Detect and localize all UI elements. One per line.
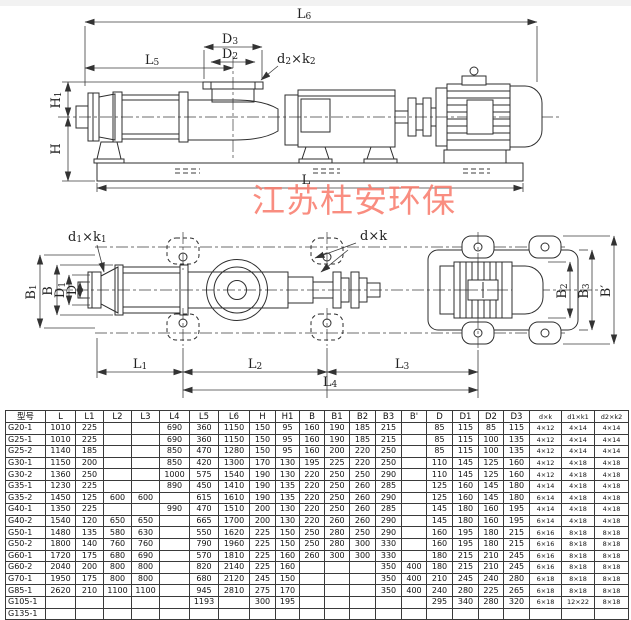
value-cell: 1960 (219, 538, 250, 550)
value-cell (160, 573, 190, 585)
col-header-15: D (427, 411, 453, 423)
value-cell: 4×12 (530, 434, 562, 446)
value-cell: 4×18 (562, 492, 595, 504)
value-cell: 2040 (46, 562, 76, 574)
value-cell: 8×18 (562, 527, 595, 539)
value-cell: 8×18 (562, 538, 595, 550)
value-cell (350, 573, 376, 585)
value-cell (402, 527, 427, 539)
model-cell: G35-1 (6, 480, 46, 492)
value-cell: 1510 (219, 504, 250, 516)
col-header-11: B1 (325, 411, 350, 423)
value-cell: 135 (76, 527, 104, 539)
col-header-21: d2×k2 (595, 411, 629, 423)
value-cell: 160 (427, 538, 453, 550)
value-cell: 135 (504, 434, 530, 446)
col-header-6: L5 (190, 411, 219, 423)
value-cell (325, 608, 350, 620)
model-cell: G60-1 (6, 550, 46, 562)
value-cell (132, 446, 160, 458)
value-cell: 1540 (219, 469, 250, 481)
value-cell: 185 (76, 446, 104, 458)
dim-label-L: L (302, 173, 311, 188)
value-cell: 115 (504, 423, 530, 435)
value-cell: 4×14 (562, 446, 595, 458)
value-cell: 420 (190, 457, 219, 469)
value-cell: 225 (76, 423, 104, 435)
value-cell: 250 (350, 527, 376, 539)
value-cell: 4×14 (595, 423, 629, 435)
dim-label-B1: B1 (24, 284, 39, 299)
col-header-16: D1 (453, 411, 479, 423)
value-cell: 1620 (219, 527, 250, 539)
value-cell: 250 (325, 492, 350, 504)
value-cell (219, 608, 250, 620)
table-row: G40-215401206506506651700200130220260260… (6, 515, 629, 527)
value-cell (530, 608, 562, 620)
value-cell: 215 (504, 527, 530, 539)
model-cell: G25-2 (6, 446, 46, 458)
suction-casing (188, 82, 278, 140)
value-cell: 280 (479, 596, 504, 608)
model-cell: G20-1 (6, 423, 46, 435)
value-cell: 160 (300, 434, 325, 446)
value-cell: 600 (132, 492, 160, 504)
value-cell: 95 (276, 434, 300, 446)
value-cell (504, 608, 530, 620)
dim-label-B3: B3 (577, 283, 592, 299)
value-cell (160, 596, 190, 608)
value-cell: 250 (325, 504, 350, 516)
value-cell: 210 (427, 573, 453, 585)
col-header-2: L1 (76, 411, 104, 423)
dim-label-B2: B2 (555, 283, 570, 298)
value-cell (46, 596, 76, 608)
col-header-1: L (46, 411, 76, 423)
value-cell: 175 (76, 573, 104, 585)
value-cell (402, 504, 427, 516)
value-cell (402, 492, 427, 504)
value-cell: 290 (376, 515, 402, 527)
value-cell: 1610 (219, 492, 250, 504)
value-cell: 280 (453, 585, 479, 597)
col-header-8: H (250, 411, 276, 423)
value-cell (402, 550, 427, 562)
col-header-5: L4 (160, 411, 190, 423)
value-cell: 690 (160, 434, 190, 446)
value-cell (402, 596, 427, 608)
lifting-eye (470, 67, 478, 75)
value-cell: 225 (250, 562, 276, 574)
value-cell: 800 (132, 562, 160, 574)
value-cell: 180 (479, 538, 504, 550)
value-cell (402, 515, 427, 527)
value-cell: 400 (402, 573, 427, 585)
value-cell: 300 (250, 596, 276, 608)
table-row: G35-214501256006006151610190135220250260… (6, 492, 629, 504)
dim-label-d2k2: d2×k2 (277, 52, 316, 67)
dim-label-L2: L2 (248, 357, 262, 372)
value-cell: 120 (76, 515, 104, 527)
value-cell: 180 (453, 515, 479, 527)
dim-label-L6: L6 (297, 7, 312, 22)
value-cell: 450 (190, 480, 219, 492)
table-row: G60-117201756806905701810225160260300300… (6, 550, 629, 562)
value-cell: 220 (300, 515, 325, 527)
value-cell (350, 596, 376, 608)
value-cell: 12×22 (562, 596, 595, 608)
value-cell: 185 (350, 434, 376, 446)
value-cell: 6×18 (530, 596, 562, 608)
model-cell: G85-1 (6, 585, 46, 597)
value-cell: 175 (76, 550, 104, 562)
value-cell (132, 434, 160, 446)
value-cell: 215 (376, 423, 402, 435)
value-cell: 1360 (46, 469, 76, 481)
value-cell (219, 596, 250, 608)
value-cell: 190 (325, 423, 350, 435)
value-cell: 115 (453, 423, 479, 435)
pump-top-view-drawing: B1 B D1 D B2 B3 B′ L1 L2 L3 (0, 230, 631, 408)
value-cell: 400 (402, 585, 427, 597)
value-cell: 8×18 (595, 585, 629, 597)
value-cell: 6×16 (530, 527, 562, 539)
value-cell (160, 538, 190, 550)
value-cell: 290 (376, 492, 402, 504)
col-header-17: D2 (479, 411, 504, 423)
value-cell (160, 527, 190, 539)
dim-label-L1: L1 (133, 357, 147, 372)
value-cell (46, 608, 76, 620)
value-cell: 145 (479, 480, 504, 492)
value-cell: 300 (350, 550, 376, 562)
value-cell (160, 515, 190, 527)
value-cell (132, 608, 160, 620)
value-cell (402, 423, 427, 435)
value-cell (132, 596, 160, 608)
table-row: G70-119501758008006802120245150350400210… (6, 573, 629, 585)
value-cell: 665 (190, 515, 219, 527)
dim-label-H1: H1 (49, 91, 64, 108)
value-cell: 1350 (46, 504, 76, 516)
value-cell (325, 573, 350, 585)
value-cell (300, 562, 325, 574)
value-cell: 800 (104, 562, 132, 574)
value-cell: 680 (104, 550, 132, 562)
value-cell (76, 596, 104, 608)
col-header-7: L6 (219, 411, 250, 423)
value-cell: 290 (376, 527, 402, 539)
dim-label-L5: L5 (145, 53, 160, 68)
value-cell: 260 (350, 504, 376, 516)
value-cell: 195 (300, 457, 325, 469)
value-cell: 1010 (46, 423, 76, 435)
value-cell: 760 (104, 538, 132, 550)
value-cell: 8×18 (595, 527, 629, 539)
value-cell: 1700 (219, 515, 250, 527)
motor (436, 67, 542, 163)
value-cell: 85 (479, 423, 504, 435)
value-cell: 160 (300, 446, 325, 458)
value-cell: 150 (250, 434, 276, 446)
table-row: G50-218001407607607901960225150250280300… (6, 538, 629, 550)
value-cell (132, 504, 160, 516)
value-cell: 615 (190, 492, 219, 504)
value-cell: 95 (276, 423, 300, 435)
value-cell (132, 480, 160, 492)
value-cell: 250 (376, 446, 402, 458)
value-cell: 280 (504, 573, 530, 585)
value-cell: 470 (190, 446, 219, 458)
value-cell: 6×18 (530, 585, 562, 597)
value-cell: 260 (300, 550, 325, 562)
value-cell: 250 (76, 469, 104, 481)
value-cell (402, 457, 427, 469)
table-row: G50-114801355806305501620225150250280250… (6, 527, 629, 539)
value-cell (160, 562, 190, 574)
value-cell: 180 (427, 562, 453, 574)
table-row: G30-111502008504201300170130195225220250… (6, 457, 629, 469)
value-cell: 125 (76, 492, 104, 504)
table-row: G40-113502259904701510200130220250260285… (6, 504, 629, 516)
value-cell: 130 (276, 504, 300, 516)
value-cell: 280 (325, 527, 350, 539)
value-cell (104, 596, 132, 608)
table-row: G25-211401858504701280150951602002202508… (6, 446, 629, 458)
value-cell: 250 (325, 469, 350, 481)
value-cell: 8×18 (595, 550, 629, 562)
value-cell (300, 585, 325, 597)
model-cell: G40-1 (6, 504, 46, 516)
value-cell: 100 (479, 446, 504, 458)
value-cell (402, 538, 427, 550)
value-cell: 220 (300, 504, 325, 516)
value-cell: 4×18 (595, 469, 629, 481)
value-cell: 4×14 (562, 423, 595, 435)
value-cell: 215 (376, 434, 402, 446)
value-cell: 135 (504, 446, 530, 458)
value-cell: 945 (190, 585, 219, 597)
value-cell: 1000 (160, 469, 190, 481)
value-cell: 225 (250, 527, 276, 539)
value-cell: 1540 (46, 515, 76, 527)
value-cell: 2810 (219, 585, 250, 597)
value-cell: 150 (276, 538, 300, 550)
dim-label-D: D (65, 285, 80, 295)
value-cell: 350 (376, 585, 402, 597)
value-cell: 820 (190, 562, 219, 574)
value-cell: 295 (427, 596, 453, 608)
value-cell: 630 (132, 527, 160, 539)
value-cell: 340 (453, 596, 479, 608)
value-cell (104, 608, 132, 620)
value-cell: 8×18 (562, 562, 595, 574)
value-cell: 350 (376, 573, 402, 585)
value-cell: 220 (350, 446, 376, 458)
value-cell: 360 (190, 434, 219, 446)
value-cell: 85 (427, 446, 453, 458)
value-cell: 225 (250, 550, 276, 562)
value-cell: 4×14 (595, 434, 629, 446)
value-cell: 1300 (219, 457, 250, 469)
value-cell: 850 (160, 446, 190, 458)
value-cell: 290 (376, 469, 402, 481)
value-cell: 245 (250, 573, 276, 585)
value-cell (276, 608, 300, 620)
value-cell: 285 (376, 504, 402, 516)
table-row: G105-111933001952953402803206×1812×228×1… (6, 596, 629, 608)
value-cell: 2620 (46, 585, 76, 597)
value-cell: 225 (250, 538, 276, 550)
value-cell: 180 (453, 504, 479, 516)
value-cell (376, 596, 402, 608)
value-cell: 690 (160, 423, 190, 435)
value-cell (325, 585, 350, 597)
value-cell: 145 (479, 492, 504, 504)
value-cell: 160 (276, 562, 300, 574)
value-cell: 260 (350, 515, 376, 527)
value-cell: 8×18 (562, 550, 595, 562)
value-cell: 160 (276, 550, 300, 562)
value-cell: 110 (427, 469, 453, 481)
value-cell: 260 (350, 492, 376, 504)
value-cell: 1150 (46, 457, 76, 469)
value-cell: 570 (190, 550, 219, 562)
value-cell: 250 (350, 469, 376, 481)
value-cell: 220 (300, 469, 325, 481)
value-cell: 600 (104, 492, 132, 504)
model-cell: G70-1 (6, 573, 46, 585)
value-cell: 1010 (46, 434, 76, 446)
value-cell: 145 (427, 504, 453, 516)
value-cell: 160 (427, 527, 453, 539)
model-cell: G30-2 (6, 469, 46, 481)
dim-label-L3: L3 (395, 357, 410, 372)
value-cell: 4×14 (595, 446, 629, 458)
value-cell: 4×12 (530, 457, 562, 469)
value-cell: 200 (76, 562, 104, 574)
value-cell: 160 (504, 469, 530, 481)
value-cell: 190 (250, 469, 276, 481)
spec-table: 型号LL1L2L3L4L5L6HH1BB1B2B3B'DD1D2D3d×kd1×… (5, 410, 629, 620)
value-cell: 135 (276, 492, 300, 504)
value-cell: 250 (325, 480, 350, 492)
value-cell: 4×18 (562, 457, 595, 469)
value-cell (104, 480, 132, 492)
value-cell: 130 (276, 457, 300, 469)
value-cell: 195 (453, 527, 479, 539)
value-cell (160, 492, 190, 504)
value-cell: 1100 (104, 585, 132, 597)
value-cell (132, 469, 160, 481)
value-cell (350, 608, 376, 620)
value-cell (402, 608, 427, 620)
value-cell: 140 (76, 538, 104, 550)
value-cell: 4×12 (530, 446, 562, 458)
value-cell (402, 469, 427, 481)
value-cell: 160 (453, 492, 479, 504)
value-cell: 200 (250, 515, 276, 527)
value-cell: 180 (479, 527, 504, 539)
value-cell: 470 (190, 504, 219, 516)
value-cell: 4×18 (595, 480, 629, 492)
value-cell (104, 423, 132, 435)
value-cell: 220 (300, 480, 325, 492)
model-cell: G40-2 (6, 515, 46, 527)
value-cell: 210 (479, 550, 504, 562)
value-cell: 200 (250, 504, 276, 516)
value-cell: 125 (427, 492, 453, 504)
value-cell: 145 (453, 457, 479, 469)
col-header-20: d1×k1 (562, 411, 595, 423)
value-cell (350, 562, 376, 574)
value-cell: 260 (350, 480, 376, 492)
value-cell: 195 (453, 538, 479, 550)
value-cell: 125 (427, 480, 453, 492)
value-cell: 145 (427, 515, 453, 527)
value-cell (376, 608, 402, 620)
dim-label-D3: D3 (222, 32, 238, 47)
value-cell: 1230 (46, 480, 76, 492)
value-cell: 6×16 (530, 562, 562, 574)
value-cell: 8×18 (595, 538, 629, 550)
value-cell (300, 596, 325, 608)
value-cell (402, 480, 427, 492)
value-cell: 320 (504, 596, 530, 608)
value-cell: 360 (190, 423, 219, 435)
value-cell: 4×18 (595, 457, 629, 469)
value-cell (104, 469, 132, 481)
value-cell: 1280 (219, 446, 250, 458)
value-cell: 650 (132, 515, 160, 527)
col-header-3: L2 (104, 411, 132, 423)
model-cell: G50-1 (6, 527, 46, 539)
col-header-18: D3 (504, 411, 530, 423)
value-cell: 150 (276, 527, 300, 539)
value-cell: 160 (479, 504, 504, 516)
model-cell: G50-2 (6, 538, 46, 550)
value-cell: 1100 (132, 585, 160, 597)
value-cell (104, 457, 132, 469)
value-cell: 245 (504, 550, 530, 562)
value-cell: 6×14 (530, 492, 562, 504)
value-cell: 1800 (46, 538, 76, 550)
value-cell: 4×12 (530, 423, 562, 435)
value-cell: 650 (104, 515, 132, 527)
value-cell: 85 (427, 434, 453, 446)
value-cell (250, 608, 276, 620)
value-cell (132, 457, 160, 469)
value-cell: 195 (276, 596, 300, 608)
value-cell: 265 (504, 585, 530, 597)
value-cell (160, 585, 190, 597)
value-cell: 285 (376, 480, 402, 492)
table-row: G85-126202101100110094528102751703504002… (6, 585, 629, 597)
table-row: G35-112302258904501410190135220250260285… (6, 480, 629, 492)
value-cell: 190 (250, 492, 276, 504)
value-cell: 180 (504, 480, 530, 492)
col-header-4: L3 (132, 411, 160, 423)
table-row: G135-1 (6, 608, 629, 620)
dim-label-d1k1: d1×k1 (68, 230, 107, 245)
value-cell: 575 (190, 469, 219, 481)
value-cell: 4×18 (562, 504, 595, 516)
value-cell: 225 (76, 480, 104, 492)
col-header-10: B (300, 411, 325, 423)
value-cell (104, 434, 132, 446)
pump-side-view-drawing: L6 D3 D2 L5 d2×k2 H1 H L (0, 0, 631, 230)
table-row: G20-110102256903601150150951601901852158… (6, 423, 629, 435)
